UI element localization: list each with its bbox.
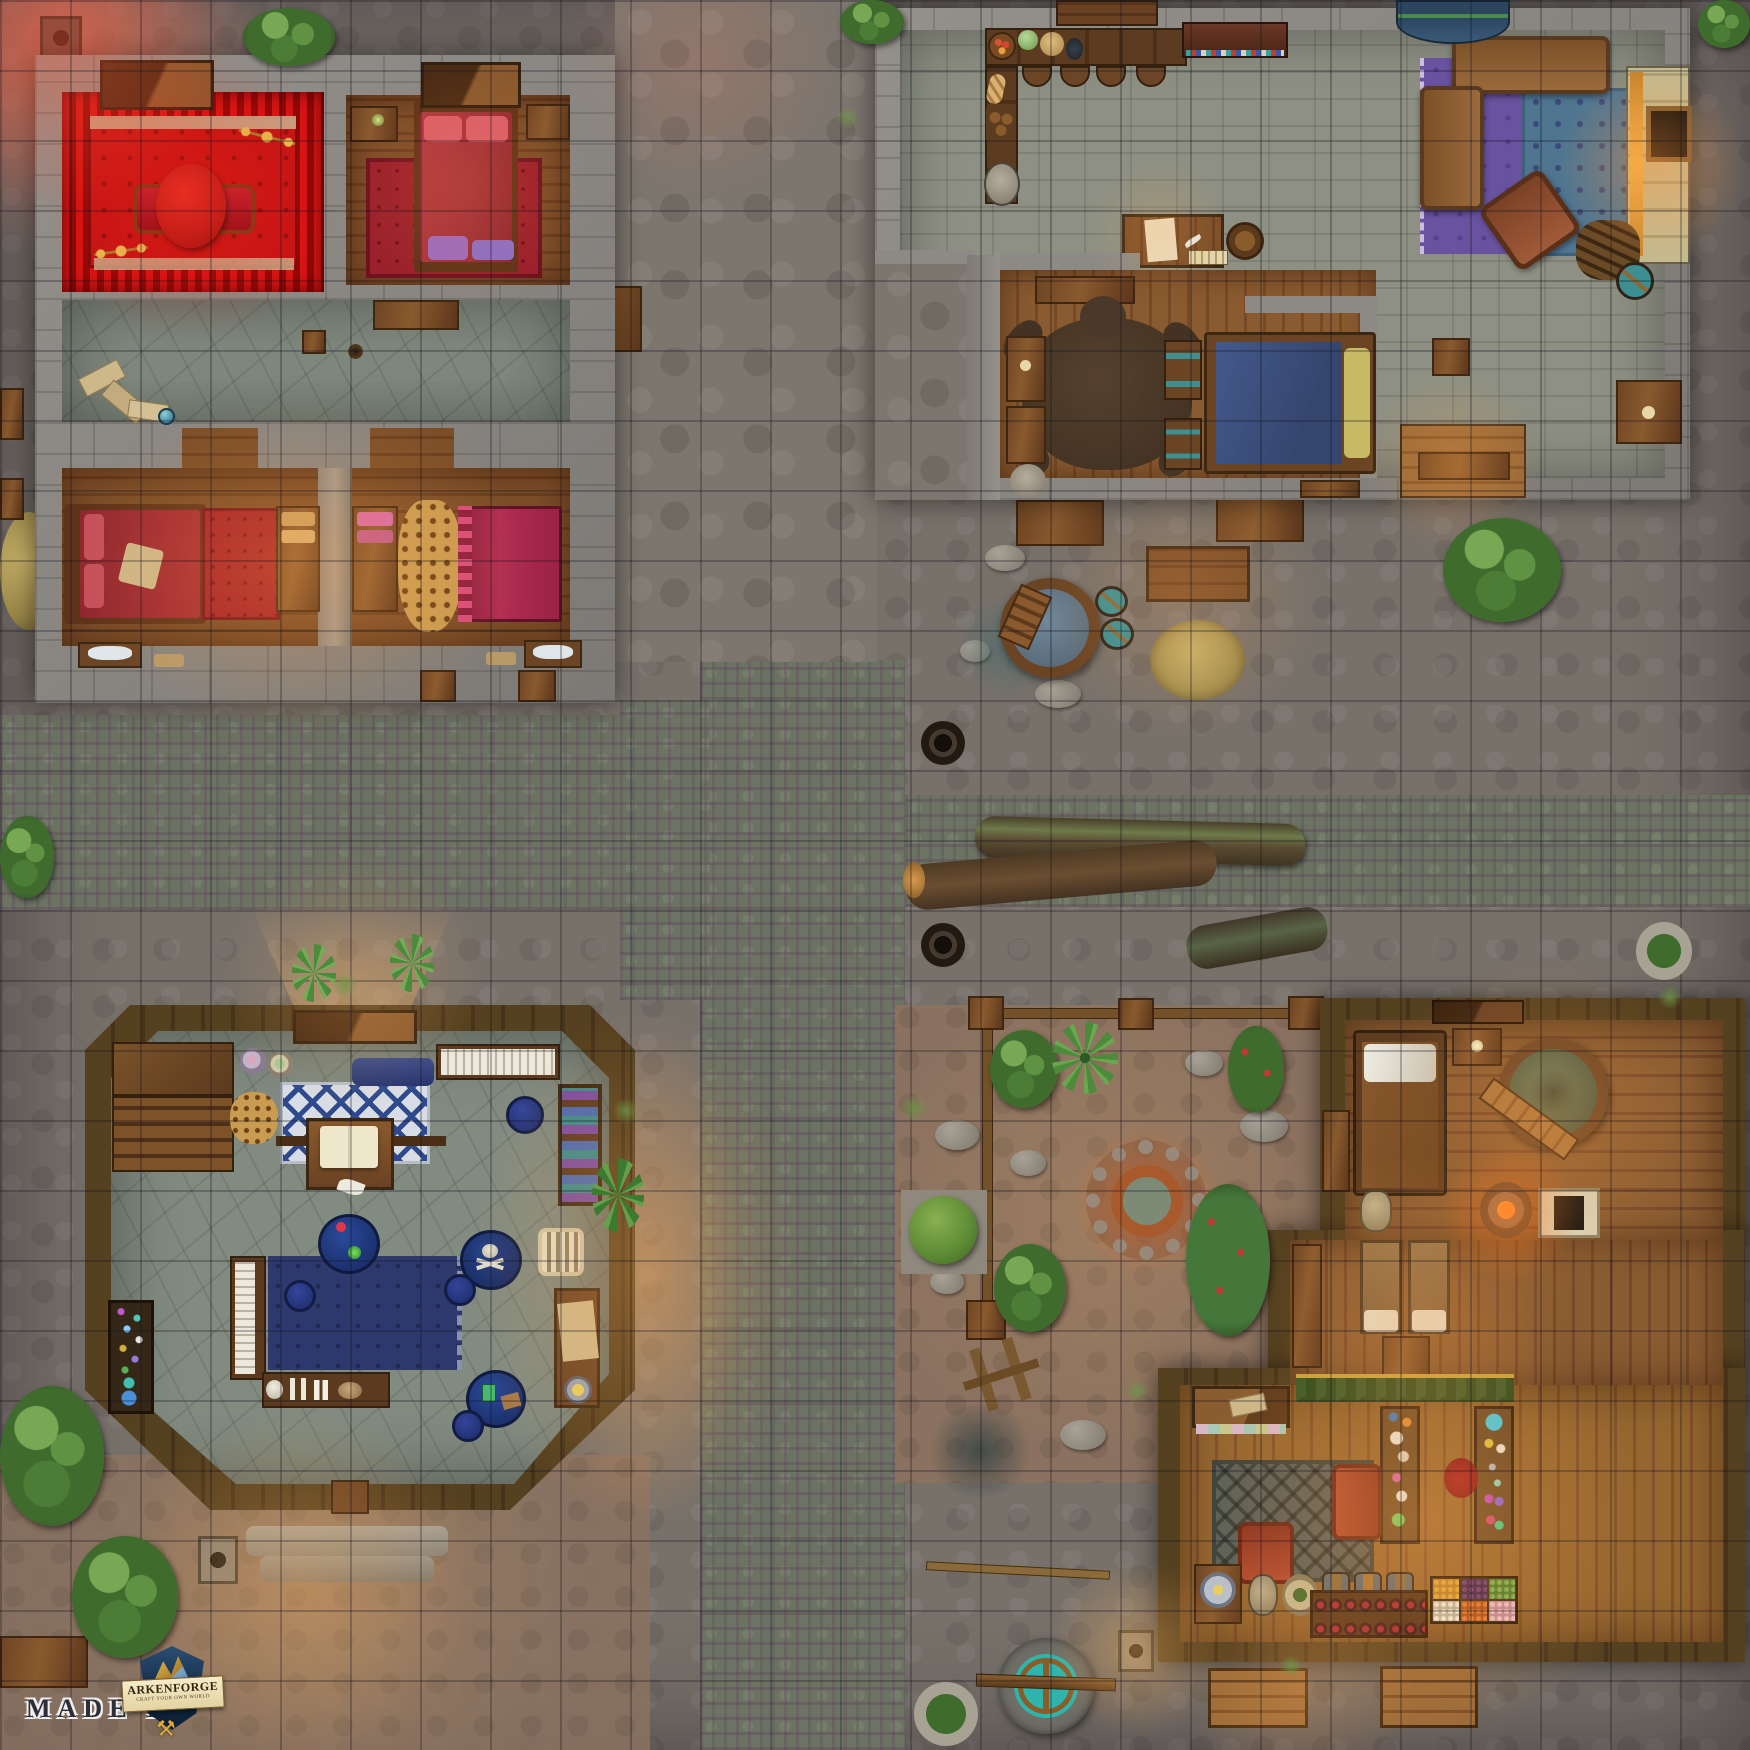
small-barrel — [1322, 1572, 1350, 1592]
bone-birdcage — [538, 1228, 584, 1276]
flagstone-top-corridor — [615, 0, 877, 662]
small-barrel — [1386, 1572, 1414, 1592]
door-step — [420, 670, 456, 702]
barrel-chest — [1164, 340, 1202, 400]
door-step — [1300, 480, 1360, 498]
street-moss-band-upper-vertical — [620, 700, 710, 1000]
blue-stool — [506, 1096, 544, 1134]
leopard-pelt — [230, 1092, 278, 1144]
green-card — [482, 1384, 496, 1402]
street-moss-band-west — [0, 715, 640, 910]
bread-rolls — [986, 108, 1016, 140]
staircase-steps — [112, 1096, 234, 1172]
candle — [1471, 1040, 1483, 1052]
hay-pile — [1150, 620, 1245, 700]
bones — [290, 1378, 306, 1400]
grass-tuft — [834, 108, 860, 128]
massage-towel — [1364, 1310, 1398, 1332]
bed-pillow — [84, 564, 104, 608]
produce-cell — [1461, 1601, 1487, 1621]
grass-tuft — [330, 974, 360, 996]
cabinet-knob — [1020, 360, 1031, 371]
street-lamp — [40, 16, 82, 60]
blue-stool — [452, 1410, 484, 1442]
rock — [935, 1120, 979, 1150]
hall-stool — [302, 330, 326, 354]
produce-cell — [1461, 1579, 1487, 1599]
door-mat — [154, 654, 184, 667]
garden-bush — [990, 1030, 1058, 1108]
entrance-steps — [260, 1556, 434, 1582]
potion-display-table — [1380, 1406, 1420, 1544]
rock — [985, 545, 1025, 571]
food-plate — [240, 1048, 266, 1074]
pastel-cushions — [1196, 1424, 1286, 1434]
bush — [0, 1386, 104, 1526]
cabbage — [1018, 30, 1038, 50]
produce-cell — [1489, 1601, 1515, 1621]
side-shelf — [276, 1136, 306, 1146]
berry-bush — [1186, 1184, 1270, 1336]
pink-towel — [357, 530, 393, 543]
stone-mortar — [1010, 464, 1046, 498]
rock — [1240, 1110, 1288, 1142]
staircase — [112, 1042, 234, 1096]
food-plate — [268, 1052, 294, 1078]
small-table — [1432, 338, 1470, 376]
bear-rug-head — [1080, 296, 1126, 338]
street-table — [1216, 498, 1304, 542]
open-book — [320, 1126, 378, 1168]
fallen-log-mossy — [1183, 904, 1330, 972]
small-barrel — [1354, 1572, 1382, 1592]
panel-hearth — [1554, 1196, 1584, 1230]
stone-pillar — [318, 468, 352, 646]
garden-bush — [994, 1244, 1066, 1332]
pink-towel — [357, 512, 393, 526]
wardrobe — [1292, 1244, 1322, 1368]
red-oval-rug — [1444, 1458, 1478, 1498]
parlor-stone-strip — [94, 258, 294, 270]
crate-knob — [1642, 406, 1655, 419]
violet-cushion — [472, 240, 514, 260]
green-potion — [348, 1246, 361, 1259]
potted-plant — [1636, 922, 1692, 980]
porch-table — [1208, 1668, 1308, 1728]
produce-cell — [1489, 1579, 1515, 1599]
yellow-pillow — [1344, 348, 1370, 458]
logo-banner: ARKENFORGE CRAFT YOUR OWN WORLD — [121, 1675, 225, 1712]
barrel-chest — [1164, 418, 1202, 470]
brown-sofa-vertical — [1420, 86, 1484, 210]
red-patterned-rug — [202, 508, 280, 620]
white-skull — [266, 1380, 283, 1399]
wash-basin — [533, 645, 573, 659]
berry-bush — [1228, 1026, 1284, 1112]
desk-cloth — [557, 1300, 599, 1361]
cabinet — [1006, 406, 1046, 464]
gem-table — [108, 1300, 154, 1414]
bed-pillow — [84, 514, 104, 560]
rock — [1185, 1050, 1223, 1076]
barrel — [1226, 222, 1264, 260]
grass-tuft — [898, 1096, 930, 1120]
tomato-plate — [988, 32, 1016, 60]
fire-fountain-inner-ring — [1108, 1162, 1186, 1240]
bed-pillow — [466, 116, 508, 142]
door-mat — [486, 652, 516, 665]
nightstand — [526, 104, 570, 140]
bathhouse-floor-middle — [1290, 1240, 1723, 1385]
leopard-pelt-rug — [398, 500, 462, 632]
bowl — [348, 344, 363, 359]
porch-table — [1380, 1666, 1478, 1728]
side-shelf — [394, 1136, 446, 1146]
brown-skull — [338, 1382, 362, 1399]
agave-plant — [1052, 1022, 1118, 1094]
blue-stool — [444, 1274, 476, 1306]
scroll-bundle — [1188, 250, 1228, 265]
teal-water-barrel — [1100, 618, 1134, 650]
grass-tuft — [1278, 1656, 1304, 1676]
tan-towel — [281, 530, 315, 543]
skull-motif — [482, 1244, 498, 1258]
parlor-stone-strip — [90, 116, 296, 129]
fence-post — [968, 996, 1004, 1030]
dresser — [1035, 276, 1135, 304]
battle-map: MADE BY ⚒ ARKENFORGE CRAFT YOUR OWN WORL… — [0, 0, 1750, 1750]
deck-bench — [1418, 452, 1510, 480]
shop-bottom-door — [331, 1480, 369, 1514]
fence-post — [1288, 996, 1324, 1030]
cellar-double-door — [421, 62, 521, 108]
cellar-double-door — [100, 60, 214, 110]
counter-slats — [235, 1262, 255, 1374]
lodge-bedroom-wall — [1000, 253, 1140, 270]
lodge-notch-wall — [875, 250, 975, 264]
dark-puddle — [925, 1405, 1035, 1497]
blue-round-table-potions — [318, 1214, 380, 1274]
wine-bottle-rack — [1310, 1590, 1428, 1638]
stone-head-statue — [1360, 1190, 1392, 1232]
corner-bench — [0, 1636, 88, 1688]
lodge-bedroom-wall — [1245, 296, 1376, 313]
entrance-steps — [246, 1526, 448, 1556]
teal-water-barrel — [1616, 262, 1654, 300]
blue-bedroll — [352, 1058, 434, 1086]
bush — [1443, 518, 1561, 622]
red-flower — [336, 1222, 346, 1232]
street-lamp — [1118, 1630, 1154, 1672]
purple-cushion — [428, 236, 468, 260]
street-notch — [875, 262, 967, 500]
grass-tuft — [614, 1096, 638, 1126]
roasting-pole — [926, 1561, 1110, 1580]
bush — [1698, 0, 1750, 48]
doorway-floor — [370, 428, 454, 470]
frying-pan — [1200, 1572, 1236, 1608]
manhole-cover — [921, 721, 965, 765]
tan-towel — [281, 512, 315, 526]
teal-water-barrel — [1095, 586, 1128, 617]
white-candles — [314, 1380, 328, 1400]
yellow-bowl — [564, 1376, 592, 1404]
rock — [1010, 1150, 1046, 1176]
scroll-rack-slats — [441, 1049, 555, 1075]
agave-plant — [292, 944, 336, 1002]
doorway-floor — [182, 428, 258, 470]
white-pillow — [1364, 1044, 1436, 1082]
paper-sheet — [1144, 218, 1178, 262]
wall-chest — [1322, 1110, 1350, 1192]
agave-plant — [390, 934, 434, 992]
potted-plant — [914, 1682, 978, 1746]
stone-face-plaque — [1248, 1574, 1278, 1616]
round-shrub — [909, 1196, 977, 1264]
leaning-canoe — [1396, 0, 1510, 44]
fence-post — [1118, 998, 1154, 1030]
log-cut-end — [903, 862, 925, 898]
produce-cell — [1433, 1601, 1459, 1621]
door-step — [518, 670, 556, 702]
bush — [0, 816, 54, 898]
bed-pillow — [424, 116, 462, 142]
bush — [840, 0, 904, 44]
bush — [243, 8, 335, 66]
grinding-stone — [984, 162, 1020, 206]
produce-cell — [1433, 1579, 1459, 1599]
well-beam — [976, 1674, 1116, 1692]
street-lamp — [198, 1536, 238, 1584]
street-table — [1146, 546, 1250, 602]
hanging-pan — [1066, 38, 1083, 60]
gem-display-table — [1474, 1406, 1514, 1544]
street-table — [1016, 500, 1104, 546]
blue-bed-mattress — [1216, 342, 1342, 464]
bush — [72, 1536, 178, 1658]
fireplace-hearth — [1646, 106, 1692, 162]
rock — [1060, 1420, 1106, 1450]
manhole-cover — [921, 923, 965, 967]
red-armchair — [1332, 1464, 1382, 1540]
shop-top-door — [293, 1010, 417, 1044]
wall-bench — [0, 478, 24, 520]
blue-stool — [284, 1280, 316, 1312]
oil-lamp — [372, 114, 384, 126]
agave-plant — [592, 1158, 644, 1232]
grass-tuft — [1124, 1380, 1150, 1402]
hammer-icon: ⚒ — [156, 1716, 176, 1742]
bread-plate — [1040, 32, 1064, 56]
green-awning — [1296, 1374, 1514, 1402]
round-red-table — [156, 164, 226, 248]
single-bed-magenta — [458, 506, 562, 622]
top-hatch — [1056, 0, 1158, 26]
wall-bench — [0, 388, 24, 440]
hall-bench — [373, 300, 459, 330]
wash-basin — [88, 646, 132, 660]
navy-rug — [268, 1256, 462, 1370]
brazier — [1480, 1182, 1532, 1238]
fence-rail-horizontal — [985, 1008, 1325, 1019]
magenta-ruffle — [458, 506, 472, 622]
massage-towel — [1412, 1310, 1446, 1332]
lodge-bedroom-west-wall — [967, 255, 1000, 500]
grass-tuft — [1656, 986, 1684, 1008]
bathhouse-top-door — [1432, 1000, 1524, 1024]
spice-row — [1186, 50, 1284, 56]
blue-orb — [158, 408, 175, 425]
